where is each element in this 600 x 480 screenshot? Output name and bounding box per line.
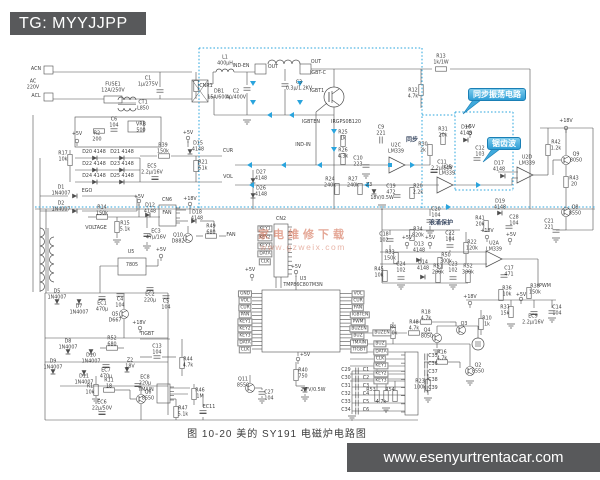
component-label: OUT [311, 60, 321, 66]
component-label: C17 471 [504, 266, 513, 277]
component-label: FUSE1 12A/250V [101, 82, 124, 93]
component-label: 4.7k [376, 400, 386, 406]
component-label: C37 [428, 370, 437, 376]
component-label: R54 [385, 388, 394, 394]
component-label: CUR [223, 149, 233, 155]
component-label: C5 [363, 400, 369, 406]
component-label: IGBT-C [310, 71, 326, 77]
component-label: EC5 2.2μ/16V [141, 164, 163, 175]
component-label: Z2 18V [125, 358, 134, 369]
component-label: AC 220V [27, 79, 39, 90]
component-label: C1 [363, 368, 369, 374]
component-label: D24 4148 [82, 174, 106, 180]
component-label: R1 10k [86, 384, 95, 395]
component-label: +5V [72, 132, 82, 138]
net-label: DATA [257, 250, 272, 257]
component-label: C32 [341, 392, 350, 398]
annotation-label: 同步 [406, 138, 418, 145]
component-label: D15 4148 [192, 141, 204, 152]
component-label: D17 4148 [493, 161, 505, 172]
net-label: CLK [259, 258, 271, 265]
component-label: 18V/0.5W [370, 196, 393, 202]
component-label: R16 4.7k [437, 350, 447, 361]
component-label: Q11 8550 [237, 377, 249, 388]
component-label: Q10 D882 [172, 233, 185, 244]
component-label: EC9 2.2μ/16V [522, 314, 544, 325]
component-label: C6 [363, 408, 369, 414]
component-label: EC2 220μ [144, 292, 156, 303]
component-label: R17 10k [58, 151, 67, 162]
component-label: ACL [31, 94, 40, 100]
component-label: +5V [516, 293, 526, 299]
component-label: R36 10k [502, 286, 511, 297]
component-label: +5V [134, 195, 144, 201]
component-label: R27 240k [347, 177, 359, 188]
component-label: R39 150k [157, 143, 169, 154]
component-label: R25 1k [338, 130, 347, 141]
component-label: R43 20 [569, 176, 578, 187]
component-label: +5V [506, 233, 516, 239]
component-label: OUT [268, 65, 278, 71]
component-label: FAN [162, 211, 171, 217]
component-label: D10 1N4007 [82, 353, 101, 364]
component-label: R20 2.2k [413, 184, 423, 195]
component-label: R24 240k [324, 177, 336, 188]
component-label: R13 1k/1W [433, 54, 448, 65]
website-url-bar: www.esenyurtrentacar.com [347, 443, 600, 472]
component-label: C1 1μ/275V [138, 76, 158, 87]
component-label: TIGBT [140, 332, 154, 338]
component-label: VRB 500 [136, 122, 146, 133]
component-label: C36 [428, 362, 437, 368]
callout-sawtooth: 锯齿波 [487, 137, 521, 150]
component-label: EGO [82, 189, 93, 195]
screenshot-page: ACNAC 220VACLFUSE1 12A/250VC1 1μ/275VCNR… [0, 0, 600, 480]
component-label: Q8 8550 [569, 205, 581, 216]
component-label: C12 103 [475, 146, 484, 157]
callout-sync-circuit: 同步振荡电路 [468, 88, 526, 101]
component-label: D13 4148 [413, 242, 425, 253]
net-label: KEY2 [257, 234, 272, 241]
component-label: D7 1N4007 [70, 304, 89, 315]
component-label: U2C LM339 [388, 143, 404, 154]
component-label: R47 5.1k [178, 406, 188, 417]
component-label: D27 4148 [255, 170, 267, 181]
component-label: R18 4.7k [421, 310, 431, 321]
component-label: EC11 [203, 405, 215, 411]
component-label: R45 10k [374, 267, 383, 278]
component-label: Q3 [461, 322, 468, 328]
component-label: CN2 [276, 217, 286, 223]
component-label: VOLTAGE [85, 226, 107, 232]
component-label: D20 4148 [82, 150, 106, 156]
component-label: C29 [341, 368, 350, 374]
component-label: C19 472 [386, 184, 395, 195]
component-label: C24 102 [396, 262, 405, 273]
component-label: R33 150k [384, 250, 396, 261]
component-label: R42 1.2k [551, 140, 561, 151]
component-label: U2A LM339 [486, 241, 502, 252]
component-label: D2 1N4007 [52, 201, 71, 212]
component-label: PWM [539, 284, 551, 290]
component-label: C38 [428, 378, 437, 384]
component-label: R52 680 [107, 336, 116, 347]
component-label: TMP86C807M3N [283, 283, 322, 289]
net-label: BUZ [373, 340, 386, 347]
component-label: D9 1N4007 [44, 359, 63, 370]
component-label: +5V [156, 248, 166, 254]
component-label: +18V [183, 197, 196, 203]
component-label: VOL [223, 175, 233, 181]
component-label: EC1 470μ [96, 301, 108, 312]
component-label: R12 4.7k [408, 88, 418, 99]
component-label: EC6 22μ/50V [92, 400, 112, 411]
component-label: D5 1N4007 [48, 289, 67, 300]
component-label: R53 [366, 388, 375, 394]
component-label: C27 104 [264, 390, 273, 401]
component-label: U2D LM339 [519, 155, 535, 166]
net-label: KEY1 [257, 225, 272, 232]
net-label: KEY1 [373, 362, 388, 369]
net-label: CLK [239, 346, 251, 353]
component-label: C23 102 [448, 262, 457, 273]
component-label: R26 4.3k [338, 148, 348, 159]
component-label: D22 4148 [82, 162, 106, 168]
component-label: C21 221 [544, 219, 553, 230]
component-label: EC8 220μ [139, 375, 151, 386]
component-label: IRGPS0B120 [331, 120, 361, 126]
component-label: D1 1N4007 [52, 185, 71, 196]
component-label: C35 [428, 354, 437, 360]
component-label: C3 0.3μ/1.2KV [286, 80, 312, 91]
component-label: Q2 8550 [472, 363, 484, 374]
component-label: C6 104 [109, 117, 118, 128]
component-label: +18V [132, 321, 145, 327]
net-label: KEY3 [373, 377, 388, 384]
component-label: IGBTEN [302, 120, 320, 126]
component-label: R15 5.1k [120, 221, 130, 232]
component-label: Z3 [366, 183, 372, 189]
component-label: TMAIN [138, 388, 153, 394]
component-label: C18 102 [379, 232, 388, 243]
component-label: C9 221 [376, 125, 385, 136]
component-label: C5 104 [161, 299, 170, 310]
component-label: R31 20k [438, 127, 447, 138]
component-label: C10 223 [353, 156, 362, 167]
component-label: +5V [183, 131, 193, 137]
component-label: R22 120k [466, 240, 478, 251]
component-label: R48 4.7k [409, 320, 419, 331]
component-label: +18V [480, 229, 493, 235]
component-label: R34 820k [412, 227, 424, 238]
component-label: D14 4148 [417, 260, 429, 271]
component-label: C20 104 [431, 207, 440, 218]
component-label: R10 1k [482, 316, 491, 327]
net-label: KEY3 [257, 242, 272, 249]
component-label: U5 [128, 250, 135, 256]
component-label: R2 200 [92, 131, 101, 142]
component-label: IND-EN [232, 64, 249, 70]
component-label: C13 104 [152, 344, 161, 355]
component-label: +5V [245, 268, 255, 274]
component-label: C30 [341, 376, 350, 382]
component-label: D26 4148 [255, 186, 267, 197]
figure-caption: 图 10-20 美的 SY191 电磁炉电路图 [147, 425, 407, 440]
component-label: FAN [226, 233, 235, 239]
component-label: Q4 8050 [421, 328, 433, 339]
component-label: R30 2k [418, 142, 427, 153]
net-label: TIGBT [350, 346, 367, 353]
component-label: D21 4148 [110, 150, 134, 156]
component-label: C28 104 [509, 215, 518, 226]
component-label: CN6 [162, 198, 172, 204]
tg-watermark-badge: TG: MYYJJPP [10, 12, 146, 35]
component-label: C4 104 [115, 297, 124, 308]
net-label: BUZEN [372, 329, 391, 336]
component-label: C34 [341, 408, 350, 414]
component-label: R40 750 [298, 368, 307, 379]
component-label: R51 200k [432, 264, 444, 275]
component-label: +18V [559, 119, 572, 125]
component-label: D23 4148 [110, 162, 134, 168]
component-label: D19 4148 [494, 199, 506, 210]
component-label: C2 [363, 376, 369, 382]
component-label: R14 150k [96, 205, 108, 216]
component-label: C2 4μ/400V [226, 89, 246, 100]
component-label: R11 18 [104, 378, 113, 389]
component-label: 2.7V/0.5W [301, 388, 326, 394]
component-label: +18V [463, 295, 476, 301]
annotation-label: 浪涌保护 [429, 221, 453, 228]
component-label: IND-IN [295, 143, 310, 149]
component-label: R49 680 [206, 224, 215, 235]
component-label: R46 1M [195, 388, 204, 399]
component-label: L1 400μH [217, 55, 233, 66]
component-label: R37 15k [500, 305, 509, 316]
component-label: Q9 8050 [570, 152, 582, 163]
component-label: R44 4.7k [183, 357, 193, 368]
component-label: CT1 L850 [137, 100, 149, 111]
component-label: ACN [31, 67, 41, 73]
component-label: R52 300k [462, 264, 474, 275]
component-label: D12 4148 [144, 203, 156, 214]
component-label: R41 20k [475, 216, 484, 227]
component-label: 7805 [126, 263, 138, 269]
component-label: Q5 D667 [109, 312, 122, 323]
component-label: D18 4148 [191, 210, 203, 221]
component-label: U3 [300, 277, 307, 283]
component-label: +5V [291, 265, 301, 271]
component-label: D8 1N4007 [59, 339, 78, 350]
component-label: R23 100k [414, 379, 426, 390]
component-label: R21 51k [198, 160, 207, 171]
component-label: +5V [300, 353, 310, 359]
component-label: C33 [341, 400, 350, 406]
component-label: D25 4148 [110, 174, 134, 180]
component-label: C22 104 [445, 231, 454, 242]
component-label: C31 [341, 384, 350, 390]
component-label: C39 [428, 386, 437, 392]
component-label: +5V [425, 236, 435, 242]
component-label: EC3 47μ/16V [146, 229, 166, 240]
component-label: IGBT1 [310, 89, 324, 95]
component-label: +5V [402, 236, 412, 242]
component-label: U2B LM339 [439, 165, 455, 176]
component-label: +5V [465, 125, 475, 131]
component-labels-layer: ACNAC 220VACLFUSE1 12A/250VC1 1μ/275VCNR… [0, 0, 600, 480]
component-label: C14 104 [552, 305, 561, 316]
